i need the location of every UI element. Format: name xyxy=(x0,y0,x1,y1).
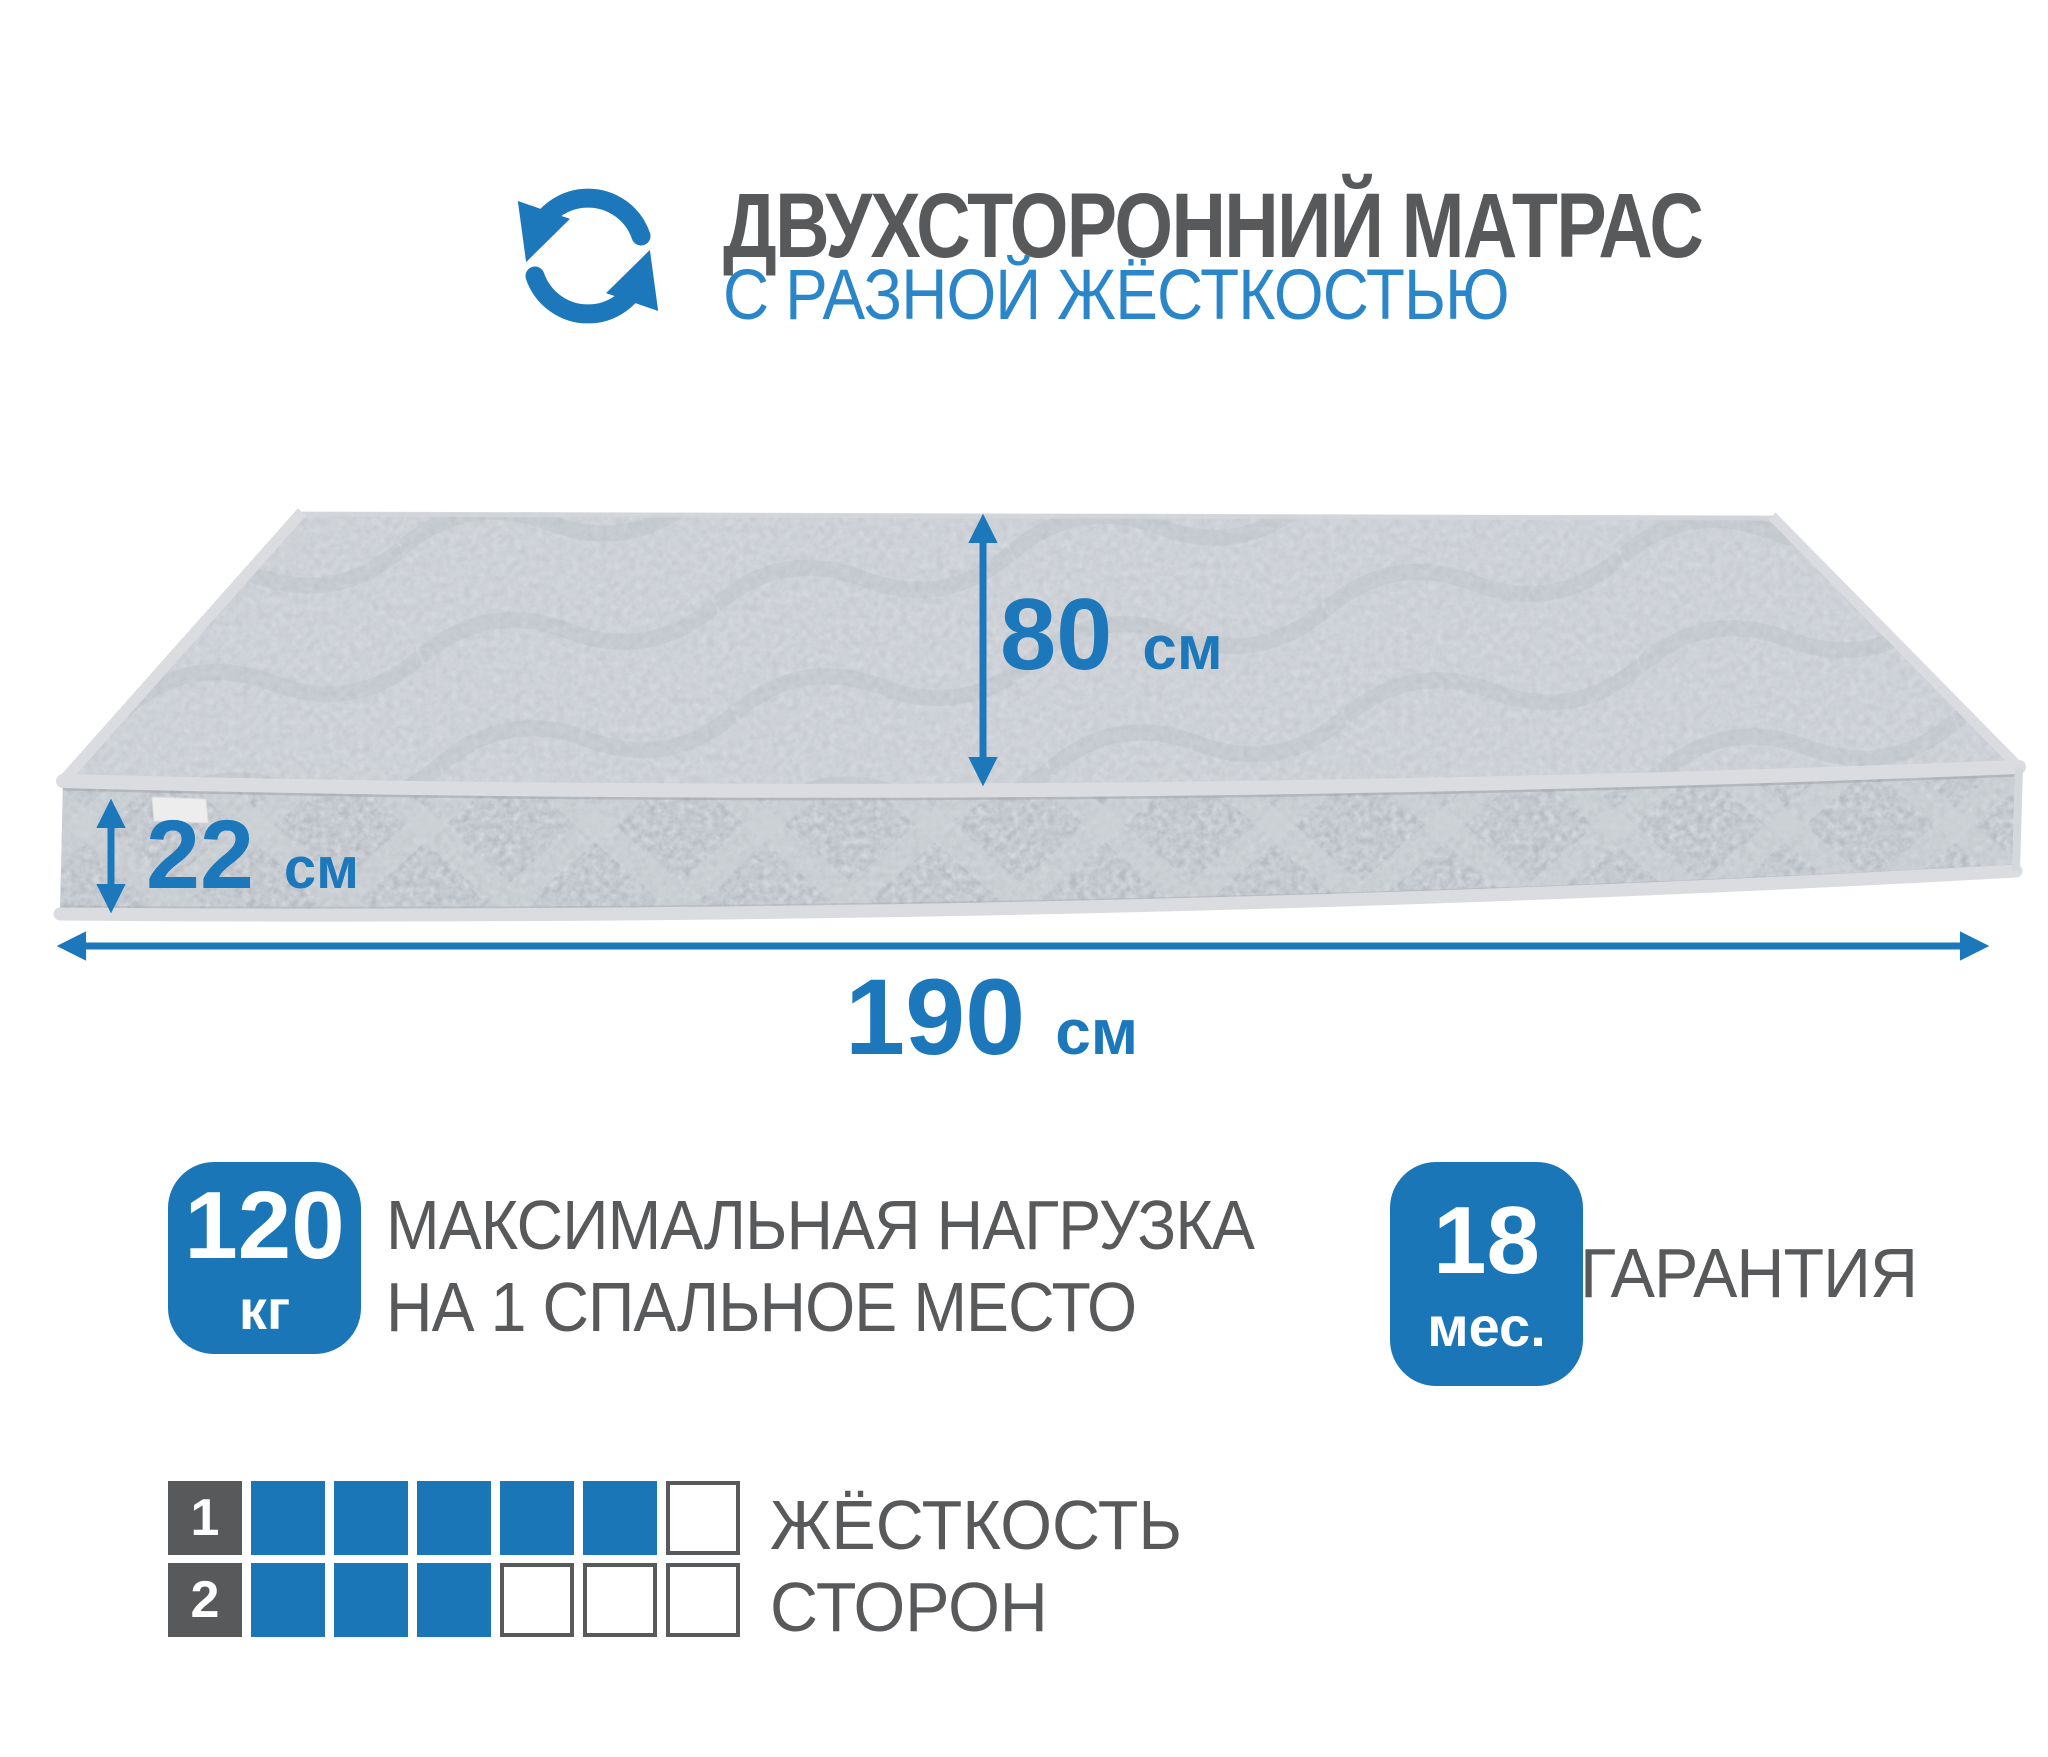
firmness-square-empty xyxy=(666,1563,740,1637)
firmness-square-empty xyxy=(583,1563,657,1637)
infographic-canvas: ДВУХСТОРОННИЙ МАТРАС С РАЗНОЙ ЖЁСТКОСТЬЮ xyxy=(0,0,2048,1757)
firmness-row-side-2: 2 xyxy=(168,1563,740,1637)
length-dimension-label: 190 см xyxy=(845,963,1138,1071)
firmness-label-line1: ЖЁСТКОСТЬ xyxy=(770,1490,1182,1560)
firmness-square-filled xyxy=(583,1481,657,1555)
firmness-scale-side-1 xyxy=(251,1481,740,1555)
warranty-label: ГАРАНТИЯ xyxy=(1580,1238,1917,1308)
firmness-label-line2: СТОРОН xyxy=(770,1572,1048,1642)
firmness-side-1-number: 1 xyxy=(168,1481,242,1555)
firmness-square-filled xyxy=(251,1563,325,1637)
max-load-value: 120 xyxy=(184,1178,344,1274)
max-load-label-line1: МАКСИМАЛЬНАЯ НАГРУЗКА xyxy=(386,1184,1254,1266)
height-dimension-label: 22 см xyxy=(146,806,359,903)
firmness-square-filled xyxy=(334,1481,408,1555)
max-load-label: МАКСИМАЛЬНАЯ НАГРУЗКА НА 1 СПАЛЬНОЕ МЕСТ… xyxy=(386,1184,1254,1348)
max-load-label-line2: НА 1 СПАЛЬНОЕ МЕСТО xyxy=(386,1266,1254,1348)
firmness-square-filled xyxy=(334,1563,408,1637)
length-unit: см xyxy=(1055,1000,1138,1064)
width-value: 80 xyxy=(1000,585,1112,686)
max-load-unit: кг xyxy=(239,1282,290,1338)
width-unit: см xyxy=(1142,618,1222,680)
firmness-square-empty xyxy=(666,1481,740,1555)
firmness-square-filled xyxy=(417,1563,491,1637)
height-value: 22 xyxy=(146,806,254,903)
width-dimension-label: 80 см xyxy=(1000,585,1223,686)
warranty-value: 18 xyxy=(1433,1193,1540,1289)
warranty-badge: 18 мес. xyxy=(1390,1162,1583,1386)
firmness-row-side-1: 1 xyxy=(168,1481,740,1555)
max-load-badge: 120 кг xyxy=(168,1162,361,1354)
firmness-scale-side-2 xyxy=(251,1563,740,1637)
firmness-square-filled xyxy=(500,1481,574,1555)
length-value: 190 xyxy=(845,963,1025,1071)
firmness-square-empty xyxy=(500,1563,574,1637)
firmness-side-2-number: 2 xyxy=(168,1563,242,1637)
firmness-square-filled xyxy=(417,1481,491,1555)
firmness-square-filled xyxy=(251,1481,325,1555)
warranty-unit: мес. xyxy=(1427,1299,1546,1355)
height-unit: см xyxy=(284,840,359,898)
